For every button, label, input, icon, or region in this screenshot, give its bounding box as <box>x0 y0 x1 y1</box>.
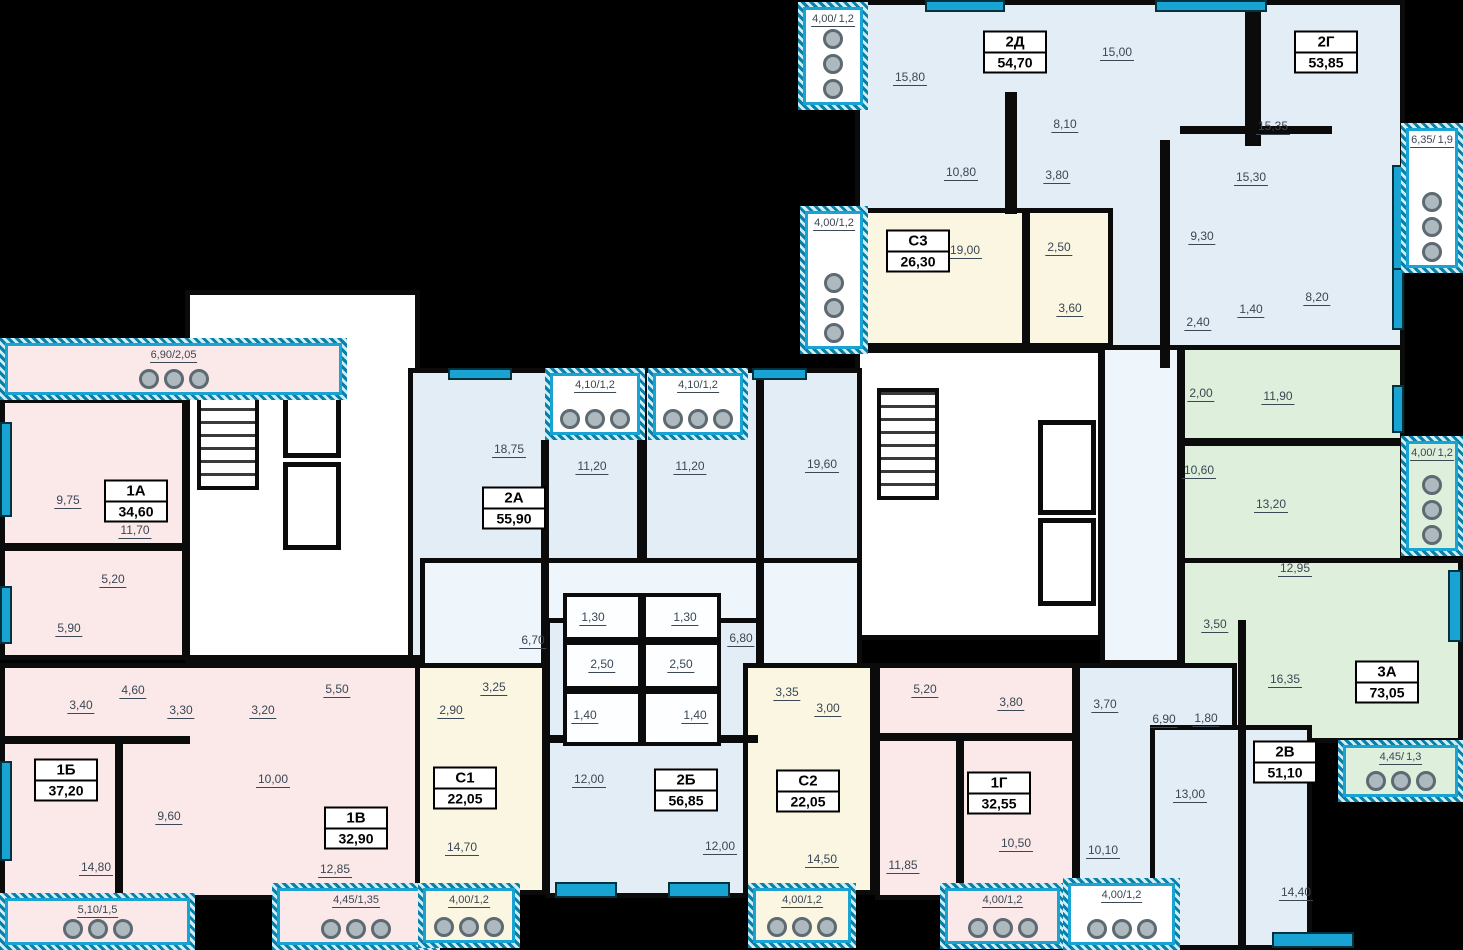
balcony-chair <box>610 409 630 429</box>
apartment-code: 1А <box>106 482 166 503</box>
balcony-label-line: 6,90/2,05 <box>150 348 198 363</box>
balcony: 6,35/1,9 <box>1401 123 1463 273</box>
balcony-label-line: 4,45/ <box>1379 750 1405 765</box>
apartment-code: С3 <box>888 232 948 253</box>
balcony-label-line: 4,10/1,2 <box>574 378 616 393</box>
balcony: 4,10/1,2 <box>648 368 748 440</box>
room-dimension: 2,00 <box>1187 386 1214 402</box>
balcony-chair <box>1366 771 1386 791</box>
balcony-chair <box>823 54 843 74</box>
balcony-label: 4,00/1,2 <box>1101 888 1143 903</box>
balcony-chair <box>88 919 108 939</box>
apartment-code: 1Б <box>36 761 96 782</box>
window-bar <box>0 586 12 644</box>
balcony-label-line: 1,3 <box>1405 750 1422 765</box>
room-dimension: 10,10 <box>1086 843 1120 859</box>
balcony-label-line: 4,10/1,2 <box>677 378 719 393</box>
apartment-label: 2Г53,85 <box>1294 31 1358 74</box>
balcony-chair <box>824 323 844 343</box>
balcony-chairs <box>560 409 630 429</box>
apartment-code: С1 <box>435 769 495 790</box>
room-dimension: 12,00 <box>572 772 606 788</box>
window-bar <box>1392 268 1404 330</box>
room-dimension: 10,80 <box>944 165 978 181</box>
apartment-label: 2В51,10 <box>1253 741 1317 784</box>
apartment-area: 32,90 <box>326 830 386 848</box>
apartment-area: 26,30 <box>888 253 948 271</box>
balcony-chair <box>663 409 683 429</box>
apartment-label: 1Г32,55 <box>967 772 1031 815</box>
window-bar <box>668 882 730 898</box>
window-bar <box>1272 932 1354 948</box>
balcony-label-line: 1,2 <box>1437 446 1454 461</box>
apartment-code: 2Д <box>985 33 1045 54</box>
balcony-chair <box>1018 918 1038 938</box>
balcony-chair <box>817 917 837 937</box>
room-dimension: 3,30 <box>167 703 194 719</box>
room-dimension: 11,90 <box>1261 389 1294 405</box>
room-dimension: 1,30 <box>579 610 606 626</box>
balcony-chair <box>484 917 504 937</box>
room-dimension: 6,90 <box>1150 712 1177 728</box>
apartment-area: 53,85 <box>1296 54 1356 72</box>
balcony: 4,10/1,2 <box>545 368 645 440</box>
room-dimension: 1,40 <box>681 708 708 724</box>
balcony-chair <box>1087 919 1107 939</box>
window-bar <box>1392 385 1404 433</box>
balcony-chair <box>688 409 708 429</box>
elevator <box>1038 420 1096 515</box>
wall <box>956 735 964 897</box>
room-dimension: 3,20 <box>249 703 276 719</box>
room-dimension: 3,00 <box>814 701 841 717</box>
balcony-label: 4,45/1,35 <box>332 893 380 908</box>
balcony: 4,00/1,2 <box>800 206 868 354</box>
floor-plan: 4,00/1,24,00/1,26,35/1,94,00/1,24,45/1,3… <box>0 0 1463 950</box>
balcony-chairs <box>1422 192 1442 262</box>
balcony-chairs <box>321 919 391 939</box>
room-dimension: 3,35 <box>773 685 800 701</box>
room-dimension: 1,30 <box>671 610 698 626</box>
balcony-label-line: 4,00/ <box>811 12 837 27</box>
balcony-chair <box>63 919 83 939</box>
room-dimension: 3,25 <box>480 680 507 696</box>
room-dimension: 5,50 <box>323 682 350 698</box>
room-dimension: 13,00 <box>1173 787 1207 803</box>
room-dimension: 2,40 <box>1184 315 1211 331</box>
room-dimension: 8,10 <box>1051 117 1078 133</box>
balcony-label: 4,45/1,3 <box>1379 750 1423 765</box>
balcony-label: 4,00/1,2 <box>781 893 823 908</box>
window-bar <box>925 0 1005 12</box>
balcony-label: 4,10/1,2 <box>574 378 616 393</box>
balcony-chair <box>767 917 787 937</box>
room-dimension: 14,80 <box>79 860 113 876</box>
apartment-area: 22,05 <box>778 793 838 811</box>
wall <box>0 543 187 551</box>
room-dimension: 5,90 <box>55 621 82 637</box>
room-dimension: 18,75 <box>492 442 526 458</box>
apartment-code: 1Г <box>969 774 1029 795</box>
balcony-chairs <box>767 917 837 937</box>
room-dimension: 4,60 <box>119 683 146 699</box>
room-dimension: 15,30 <box>1234 170 1268 186</box>
balcony-label-line: 4,00/1,2 <box>448 893 490 908</box>
balcony-label: 6,35/1,9 <box>1410 133 1454 148</box>
room-dimension: 12,85 <box>318 862 352 878</box>
balcony-label-line: 4,45/1,35 <box>332 893 380 908</box>
balcony-chair <box>1391 771 1411 791</box>
balcony-chairs <box>663 409 733 429</box>
room-dimension: 5,20 <box>99 572 126 588</box>
room-dimension: 3,80 <box>997 695 1024 711</box>
elevator <box>283 462 341 550</box>
apartment-area: 22,05 <box>435 790 495 808</box>
apartment-label: С326,30 <box>886 230 950 273</box>
balcony-chairs <box>1422 475 1442 545</box>
room-dimension: 9,60 <box>155 809 182 825</box>
apartment-code: 2В <box>1255 743 1315 764</box>
wall <box>115 738 123 896</box>
balcony-chair <box>792 917 812 937</box>
balcony-chairs <box>139 369 209 389</box>
room-dimension: 11,20 <box>575 459 608 475</box>
window-bar <box>448 368 512 380</box>
balcony-chairs <box>968 918 1038 938</box>
apartment-label: 3А73,05 <box>1355 661 1419 704</box>
room-dimension: 3,60 <box>1056 301 1083 317</box>
balcony-chair <box>585 409 605 429</box>
balcony-label-line: 4,00/1,2 <box>813 216 855 231</box>
apartment-code: 2А <box>484 489 544 510</box>
room-dimension: 9,75 <box>54 493 81 509</box>
balcony-chair <box>824 273 844 293</box>
room-dimension: 8,20 <box>1303 290 1330 306</box>
balcony: 4,00/1,2 <box>418 883 520 948</box>
apartment-area: 55,90 <box>484 510 544 528</box>
room-dimension: 3,70 <box>1091 697 1118 713</box>
wall <box>1022 208 1030 348</box>
balcony-label-line: 4,00/1,2 <box>1101 888 1143 903</box>
window-bar <box>1155 0 1267 12</box>
room-dimension: 12,00 <box>703 839 737 855</box>
room-dimension: 10,60 <box>1182 463 1216 479</box>
apartment-code: 3А <box>1357 663 1417 684</box>
balcony-chairs <box>824 273 844 343</box>
room-dimension: 15,35 <box>1256 119 1290 135</box>
room-dimension: 14,70 <box>445 840 479 856</box>
balcony-label: 4,00/1,2 <box>1410 446 1454 461</box>
staircase <box>877 388 939 500</box>
wall <box>875 733 1077 741</box>
balcony-chair <box>346 919 366 939</box>
room-dimension: 1,40 <box>571 708 598 724</box>
balcony-chair <box>434 917 454 937</box>
window-bar <box>555 882 617 898</box>
window-bar <box>1448 570 1462 642</box>
balcony-label: 4,10/1,2 <box>677 378 719 393</box>
room-dimension: 6,70 <box>519 633 546 649</box>
balcony-chair <box>113 919 133 939</box>
balcony-chairs <box>434 917 504 937</box>
balcony-label: 4,00/1,2 <box>448 893 490 908</box>
wall <box>756 368 764 663</box>
window-bar <box>0 761 12 861</box>
balcony-chair <box>1422 525 1442 545</box>
balcony-chair <box>824 298 844 318</box>
balcony-label-line: 5,10/1,5 <box>77 903 119 918</box>
apartment-code: 2Б <box>656 771 716 792</box>
room-dimension: 11,20 <box>673 459 706 475</box>
room-dimension: 3,80 <box>1043 168 1070 184</box>
room-dimension: 1,80 <box>1192 711 1219 727</box>
room-dimension: 2,50 <box>1045 240 1072 256</box>
balcony: 4,00/1,2 <box>940 883 1065 949</box>
balcony: 4,45/1,3 <box>1338 740 1463 802</box>
room-dimension: 11,70 <box>118 523 151 539</box>
room-dimension: 19,00 <box>948 243 982 259</box>
room-dimension: 15,80 <box>893 70 927 86</box>
balcony-label: 4,00/1,2 <box>982 893 1024 908</box>
balcony-chair <box>139 369 159 389</box>
balcony: 4,45/1,35 <box>272 883 440 950</box>
room-dimension: 2,90 <box>437 703 464 719</box>
wall <box>1160 140 1170 368</box>
corridor-right <box>1100 345 1182 665</box>
balcony: 4,00/1,2 <box>1401 436 1463 556</box>
room-dimension: 3,50 <box>1201 617 1228 633</box>
apartment-label: 2А55,90 <box>482 487 546 530</box>
room-dimension: 14,50 <box>805 852 839 868</box>
room-dimension: 9,30 <box>1188 229 1215 245</box>
room-dimension: 19,60 <box>805 457 839 473</box>
wall <box>1005 92 1017 214</box>
room-dimension: 14,40 <box>1279 885 1313 901</box>
apartment-label: 1А34,60 <box>104 480 168 523</box>
wall <box>1238 620 1246 950</box>
room-dimension: 13,20 <box>1254 497 1288 513</box>
balcony-chair <box>993 918 1013 938</box>
room-dimension: 3,40 <box>67 698 94 714</box>
balcony-chair <box>1137 919 1157 939</box>
apartment-label: С122,05 <box>433 767 497 810</box>
room-dimension: 15,00 <box>1100 45 1134 61</box>
apartment-area: 73,05 <box>1357 684 1417 702</box>
window-bar <box>752 368 807 380</box>
balcony-label: 4,00/1,2 <box>813 216 855 231</box>
balcony-chairs <box>823 29 843 99</box>
room-dimension: 2,50 <box>588 657 615 673</box>
balcony-chair <box>1422 500 1442 520</box>
balcony-label-line: 4,00/1,2 <box>781 893 823 908</box>
apartment-code: С2 <box>778 772 838 793</box>
room-dimension: 2,50 <box>667 657 694 673</box>
room-dimension: 11,85 <box>886 858 919 874</box>
balcony-chair <box>321 919 341 939</box>
room-dimension: 12,95 <box>1278 561 1312 577</box>
balcony: 5,10/1,5 <box>0 893 195 950</box>
balcony-label-line: 4,00/1,2 <box>982 893 1024 908</box>
balcony-label: 6,90/2,05 <box>150 348 198 363</box>
wall <box>185 655 420 663</box>
balcony-chairs <box>1087 919 1157 939</box>
apartment-area: 34,60 <box>106 503 166 521</box>
balcony-chair <box>1416 771 1436 791</box>
apartment-label: С222,05 <box>776 770 840 813</box>
apartment-area: 32,55 <box>969 795 1029 813</box>
apartment-code: 1В <box>326 809 386 830</box>
balcony-chair <box>1112 919 1132 939</box>
apartment-area: 54,70 <box>985 54 1045 72</box>
balcony-label-line: 1,9 <box>1437 133 1454 148</box>
balcony-chair <box>560 409 580 429</box>
balcony: 4,00/1,2 <box>1063 878 1180 950</box>
apartment-label: 1Б37,20 <box>34 759 98 802</box>
elevator <box>1038 518 1096 606</box>
balcony-chair <box>371 919 391 939</box>
balcony: 4,00/1,2 <box>798 2 868 110</box>
balcony-label-line: 1,2 <box>838 12 855 27</box>
apartment-area: 51,10 <box>1255 764 1315 782</box>
window-bar <box>0 422 12 517</box>
balcony-label: 4,00/1,2 <box>811 12 855 27</box>
apartment-label: 2Д54,70 <box>983 31 1047 74</box>
balcony-chair <box>189 369 209 389</box>
room-dimension: 5,20 <box>911 682 938 698</box>
room-dimension: 1,40 <box>1237 302 1264 318</box>
apartment-area: 56,85 <box>656 792 716 810</box>
balcony-chair <box>459 917 479 937</box>
balcony-chair <box>1422 217 1442 237</box>
apartment-1a <box>0 398 187 660</box>
balcony-chair <box>164 369 184 389</box>
balcony-chairs <box>63 919 133 939</box>
wall <box>1180 438 1405 446</box>
balcony-chair <box>1422 242 1442 262</box>
balcony-chair <box>1422 192 1442 212</box>
balcony-chair <box>823 29 843 49</box>
balcony: 4,00/1,2 <box>748 883 856 948</box>
wall <box>0 736 190 744</box>
room-dimension: 16,35 <box>1268 672 1302 688</box>
balcony-chairs <box>1366 771 1436 791</box>
balcony-chair <box>713 409 733 429</box>
balcony: 6,90/2,05 <box>0 338 347 400</box>
balcony-chair <box>968 918 988 938</box>
balcony-chair <box>1422 475 1442 495</box>
apartment-label: 1В32,90 <box>324 807 388 850</box>
balcony-label-line: 4,00/ <box>1410 446 1436 461</box>
balcony-label: 5,10/1,5 <box>77 903 119 918</box>
balcony-chair <box>823 79 843 99</box>
apartment-label: 2Б56,85 <box>654 769 718 812</box>
balcony-label-line: 6,35/ <box>1410 133 1436 148</box>
room-dimension: 6,80 <box>727 631 754 647</box>
apartment-area: 37,20 <box>36 782 96 800</box>
room-dimension: 10,00 <box>256 772 290 788</box>
apartment-code: 2Г <box>1296 33 1356 54</box>
room-dimension: 10,50 <box>999 836 1033 852</box>
